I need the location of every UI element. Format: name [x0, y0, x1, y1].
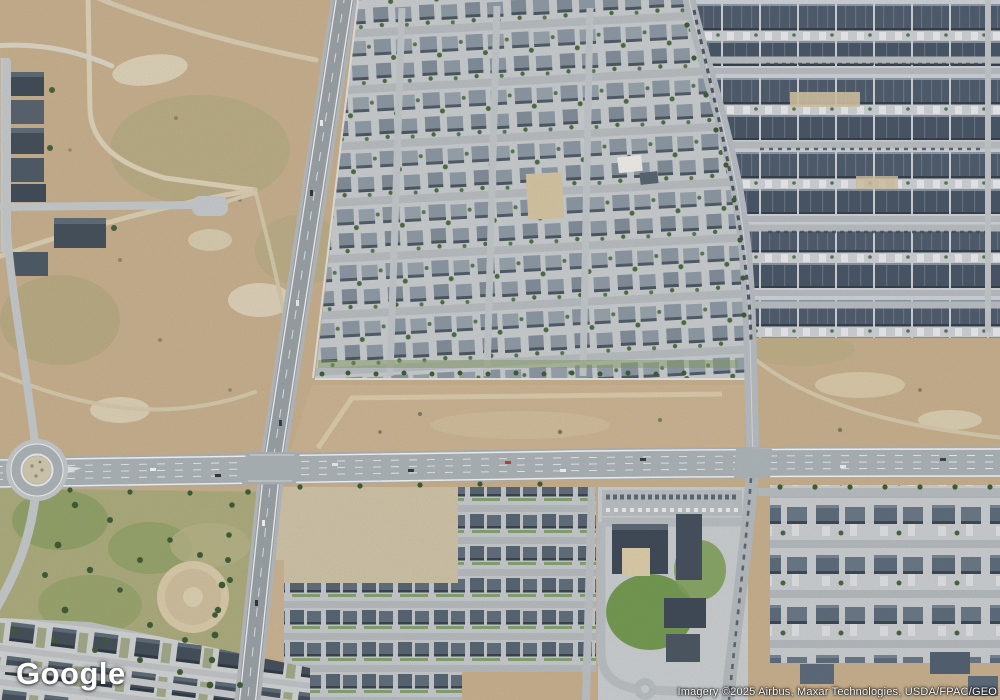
map-viewport: Google Imagery ©2025 Airbus, Maxar Techn…	[0, 0, 1000, 700]
imagery-grain	[0, 0, 1000, 700]
imagery-attribution: Imagery ©2025 Airbus, Maxar Technologies…	[678, 686, 998, 698]
satellite-map-canvas[interactable]	[0, 0, 1000, 700]
google-logo[interactable]: Google	[16, 656, 126, 692]
